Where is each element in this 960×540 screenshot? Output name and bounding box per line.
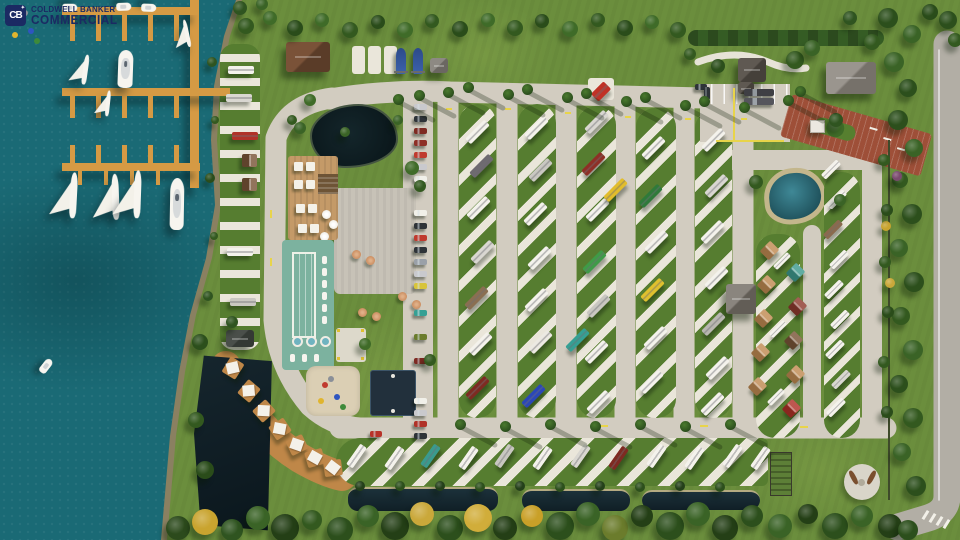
tree xyxy=(424,354,436,366)
palm-tree-icon xyxy=(680,100,691,111)
paver-patio xyxy=(334,188,416,294)
palm-tree-icon xyxy=(562,92,573,103)
tree xyxy=(881,221,891,231)
parked-car xyxy=(414,398,427,404)
tree xyxy=(410,502,434,526)
parked-car xyxy=(414,271,427,277)
dock-finger xyxy=(148,145,153,163)
tree xyxy=(192,509,218,535)
palm-tree-icon xyxy=(739,102,750,113)
tree xyxy=(414,180,426,192)
rv-site-column xyxy=(336,438,768,486)
tree xyxy=(715,482,725,492)
stored-boat xyxy=(413,48,423,74)
tree xyxy=(804,40,820,56)
play-equipment xyxy=(322,382,328,388)
tree xyxy=(686,502,710,526)
palm-tree-icon xyxy=(590,421,601,432)
dock-finger xyxy=(156,171,160,185)
tree xyxy=(903,25,921,43)
parked-car xyxy=(414,421,427,427)
hoop xyxy=(391,374,395,378)
coldwell-banker-cb-icon: CB ✦ xyxy=(5,5,26,26)
yellow-road-mark xyxy=(625,116,631,118)
cabin-ridge xyxy=(249,179,251,190)
cabana xyxy=(294,162,303,171)
cabin-ridge xyxy=(793,302,802,311)
tree xyxy=(233,1,247,15)
yacht-helm xyxy=(175,194,178,201)
tree xyxy=(768,514,792,538)
sport-court xyxy=(370,370,416,416)
tree xyxy=(635,482,645,492)
tree xyxy=(342,22,358,38)
dock-finger xyxy=(148,15,153,41)
parked-car xyxy=(414,152,427,158)
tree xyxy=(741,505,763,527)
yacht xyxy=(170,178,185,230)
umbrella-white xyxy=(329,220,338,229)
park-cabin xyxy=(242,178,257,191)
tree xyxy=(595,481,605,491)
roof-ridge xyxy=(434,65,445,67)
palm-tree-icon xyxy=(581,88,592,99)
yellow-road-mark xyxy=(565,112,571,114)
tree xyxy=(892,307,910,325)
boat-seat xyxy=(121,5,127,9)
dock-finger xyxy=(174,145,179,163)
parked-car xyxy=(414,283,427,289)
lane-dash xyxy=(897,147,905,151)
umbrella-terracotta xyxy=(398,292,407,301)
tree xyxy=(226,316,238,328)
tree xyxy=(357,505,379,527)
tree xyxy=(464,504,492,532)
cabin-ridge xyxy=(791,268,800,277)
tree xyxy=(546,512,574,540)
dock-finger xyxy=(122,145,127,163)
roof-ridge xyxy=(232,338,249,340)
tree xyxy=(359,338,371,350)
pergola xyxy=(318,174,338,194)
yellow-road-mark xyxy=(600,425,608,427)
hot-tub xyxy=(320,336,331,347)
glamping-tent xyxy=(323,459,343,477)
boat-trailer xyxy=(394,71,408,73)
tree xyxy=(893,443,911,461)
tree xyxy=(381,512,409,540)
community-garden xyxy=(770,452,792,496)
tree xyxy=(211,116,219,124)
tree xyxy=(271,514,299,540)
cabin-ridge xyxy=(791,370,800,379)
cabana xyxy=(298,224,307,233)
dock-finger xyxy=(96,145,101,163)
pool-lounger xyxy=(322,268,327,276)
tree xyxy=(903,340,923,360)
brand-wordmark: COLDWELL BANKER COMMERCIAL xyxy=(31,5,118,27)
yellow-road-mark xyxy=(716,140,784,142)
palm-tree-icon xyxy=(680,421,691,432)
tree xyxy=(885,278,895,288)
palm-tree-icon xyxy=(545,419,556,430)
cabin-ridge xyxy=(753,382,762,391)
tree xyxy=(898,520,918,540)
rv-vehicle xyxy=(230,298,256,306)
brand-line1: COLDWELL BANKER xyxy=(31,5,118,14)
parked-car xyxy=(744,89,774,96)
court-marker xyxy=(361,357,364,360)
hedge-row xyxy=(688,30,884,46)
palm-tree-icon xyxy=(443,87,454,98)
palm-tree-icon xyxy=(640,92,651,103)
playground xyxy=(306,366,360,416)
palm-tree-icon xyxy=(621,96,632,107)
roof-ridge xyxy=(732,298,750,300)
cb-star-icon: ✦ xyxy=(21,6,24,11)
tree xyxy=(188,412,204,428)
tree xyxy=(210,232,218,240)
palm-tree-icon xyxy=(463,82,474,93)
court-marker xyxy=(337,329,340,332)
tree xyxy=(712,515,738,540)
parked-car xyxy=(414,210,427,216)
tree xyxy=(890,239,908,257)
roof-ridge xyxy=(295,56,321,58)
pool-lounger xyxy=(290,354,295,362)
lakeside-house xyxy=(286,42,330,72)
tree xyxy=(166,516,190,540)
concrete-pad xyxy=(368,46,381,74)
umbrella-terracotta xyxy=(352,250,361,259)
aerial-site-rendering: CB ✦ COLDWELL BANKER COMMERCIAL PREMIER … xyxy=(0,0,960,540)
palm-tree-icon xyxy=(725,419,736,430)
dock-walkway xyxy=(62,88,230,96)
brand-line2: COMMERCIAL xyxy=(31,14,118,27)
small-boat xyxy=(116,2,131,10)
cabin-ridge xyxy=(787,404,796,413)
play-equipment xyxy=(28,28,34,34)
yacht xyxy=(117,50,133,89)
tree xyxy=(786,51,804,69)
umbrella-terracotta xyxy=(372,312,381,321)
play-equipment xyxy=(340,404,346,410)
stored-boat xyxy=(396,48,406,74)
dock-finger xyxy=(148,96,153,118)
tree xyxy=(203,291,213,301)
parked-car xyxy=(414,334,427,340)
yellow-road-mark xyxy=(741,118,747,120)
parked-car xyxy=(414,410,427,416)
tree xyxy=(287,115,297,125)
dock-finger xyxy=(174,96,179,118)
tree xyxy=(881,406,893,418)
tree xyxy=(905,139,923,157)
tree xyxy=(475,482,485,492)
sailboat xyxy=(94,89,116,117)
tree xyxy=(452,21,468,37)
palm-tree-icon xyxy=(455,419,466,430)
sailboat xyxy=(112,169,150,218)
tree xyxy=(675,481,685,491)
umbrella-terracotta xyxy=(366,256,375,265)
cabana xyxy=(306,162,315,171)
tree xyxy=(562,21,578,37)
tent-canopy xyxy=(257,405,270,417)
cabin-ridge xyxy=(789,336,798,345)
cabana xyxy=(294,180,303,189)
parked-car xyxy=(414,247,427,253)
tree xyxy=(882,306,894,318)
tree xyxy=(878,356,890,368)
rv-vehicle xyxy=(232,132,258,140)
tree xyxy=(371,15,385,29)
dock-finger xyxy=(70,145,75,163)
yellow-road-mark xyxy=(685,118,691,120)
dock-finger xyxy=(122,15,127,41)
tree xyxy=(878,8,898,28)
tree xyxy=(246,506,270,530)
roof-ridge xyxy=(836,77,866,79)
dock-finger xyxy=(70,96,75,118)
yellow-road-mark xyxy=(800,426,808,428)
tree xyxy=(591,13,605,27)
palm-tree-icon xyxy=(783,95,794,106)
palm-tree-icon xyxy=(393,94,404,105)
tree xyxy=(397,22,413,38)
cabana xyxy=(296,204,305,213)
tree xyxy=(851,505,873,527)
parked-car xyxy=(414,259,427,265)
tree xyxy=(515,481,525,491)
tree xyxy=(207,57,217,67)
palm-tree-icon xyxy=(503,89,514,100)
lane-dash xyxy=(869,127,877,131)
tree xyxy=(881,204,893,216)
tree xyxy=(902,204,922,224)
tree xyxy=(749,175,763,189)
tree xyxy=(405,161,419,175)
tent-canopy xyxy=(225,361,239,374)
tree xyxy=(287,20,303,36)
umbrella-terracotta xyxy=(412,300,421,309)
boat-seat xyxy=(146,6,152,10)
dock-finger xyxy=(122,96,127,118)
parked-car xyxy=(414,310,427,316)
maintenance-shed xyxy=(226,330,254,347)
tree xyxy=(340,127,350,137)
tree xyxy=(878,154,890,166)
tree xyxy=(395,481,405,491)
umbrella-terracotta xyxy=(358,308,367,317)
small-boat xyxy=(141,3,156,11)
boat-trailer xyxy=(411,71,425,73)
tree xyxy=(906,476,926,496)
tree xyxy=(263,11,277,25)
tree xyxy=(884,52,904,72)
welcome-center xyxy=(826,62,876,94)
hot-tub xyxy=(306,336,317,347)
cabana xyxy=(306,180,315,189)
court-marker xyxy=(337,357,340,360)
tree xyxy=(888,110,908,130)
tree xyxy=(864,34,880,50)
sailboat-hull xyxy=(105,90,112,116)
tree xyxy=(435,481,445,491)
parked-car xyxy=(414,433,427,439)
tree xyxy=(822,513,848,539)
sailboat-hull xyxy=(133,170,142,218)
tree xyxy=(645,15,659,29)
hot-tub xyxy=(292,336,303,347)
tree xyxy=(205,173,215,183)
firepit-bench xyxy=(866,470,877,486)
pool-lounger xyxy=(314,354,319,362)
tree xyxy=(393,115,403,125)
tent-canopy xyxy=(325,460,341,476)
tree xyxy=(834,194,846,206)
tree xyxy=(602,515,628,540)
roof-ridge xyxy=(744,69,761,71)
sailboat-hull xyxy=(81,54,90,84)
palm-tree-icon xyxy=(795,86,806,97)
play-equipment xyxy=(318,398,324,404)
umbrella-white xyxy=(322,210,331,219)
yellow-road-mark xyxy=(700,425,708,427)
palm-tree-icon xyxy=(635,419,646,430)
tree xyxy=(617,20,633,36)
rv-vehicle xyxy=(228,66,254,74)
parked-car xyxy=(414,235,427,241)
tree xyxy=(892,171,902,181)
sailboat xyxy=(68,53,94,86)
cabin-ridge xyxy=(762,280,771,289)
rv-vehicle xyxy=(227,248,253,256)
tree xyxy=(521,505,543,527)
tree xyxy=(903,408,923,428)
tree xyxy=(238,18,254,34)
tent-canopy xyxy=(242,385,255,397)
play-equipment xyxy=(12,32,18,38)
tree xyxy=(631,505,653,527)
yellow-road-mark xyxy=(270,258,272,266)
court-marker xyxy=(361,329,364,332)
tree xyxy=(493,516,517,540)
cabana xyxy=(308,204,317,213)
tree xyxy=(576,502,600,526)
pool-lounger xyxy=(322,280,327,288)
pool-lounger xyxy=(322,256,327,264)
storage-shed xyxy=(430,58,448,73)
tree xyxy=(843,11,857,25)
cabin-ridge xyxy=(249,155,251,166)
rv-vehicle xyxy=(226,94,252,102)
yellow-road-mark xyxy=(270,210,272,218)
tree xyxy=(425,14,439,28)
tree xyxy=(302,510,322,530)
cabin-ridge xyxy=(765,246,774,255)
hoop xyxy=(391,409,395,413)
swimming-pool xyxy=(292,252,316,338)
fence-line xyxy=(888,140,890,500)
park-cabin xyxy=(242,154,257,167)
sailboat-hull xyxy=(69,172,78,218)
sailboat xyxy=(49,171,86,219)
tree xyxy=(192,334,208,350)
palm-tree-icon xyxy=(414,90,425,101)
tree xyxy=(196,461,214,479)
tent-canopy xyxy=(273,422,287,435)
tree xyxy=(355,481,365,491)
tree xyxy=(684,48,696,60)
cabin-ridge xyxy=(756,348,765,357)
tree xyxy=(656,512,684,540)
tree xyxy=(507,20,523,36)
boat-seat xyxy=(42,362,49,369)
tree xyxy=(904,272,924,292)
parked-car xyxy=(370,431,382,437)
pool-lounger xyxy=(322,316,327,324)
tree xyxy=(939,11,957,29)
tree xyxy=(315,13,329,27)
yellow-road-mark xyxy=(505,108,511,110)
palm-tree-icon xyxy=(500,421,511,432)
tree xyxy=(327,517,353,540)
tree xyxy=(555,482,565,492)
mid-house xyxy=(726,284,756,314)
tree xyxy=(798,504,818,524)
tree xyxy=(711,59,725,73)
tree xyxy=(670,22,686,38)
tree xyxy=(294,122,306,134)
tent-canopy xyxy=(307,450,323,465)
tree xyxy=(437,515,463,540)
yellow-road-mark xyxy=(733,88,735,140)
tree xyxy=(922,4,938,20)
tree xyxy=(304,94,316,106)
tree xyxy=(879,256,891,268)
pool-lounger xyxy=(322,304,327,312)
firepit-circle xyxy=(844,464,880,500)
tree xyxy=(948,33,960,47)
parked-car xyxy=(414,223,427,229)
cb-monogram: CB xyxy=(9,10,21,21)
tree xyxy=(890,375,908,393)
tree xyxy=(481,13,495,27)
tree xyxy=(899,79,917,97)
cabin-ridge xyxy=(759,314,768,323)
play-equipment xyxy=(334,394,340,400)
cabana xyxy=(310,224,319,233)
palm-tree-icon xyxy=(522,84,533,95)
play-equipment xyxy=(328,376,334,382)
concrete-pad xyxy=(352,46,365,74)
pool-lounger xyxy=(322,292,327,300)
pool-lounger xyxy=(302,354,307,362)
parked-car xyxy=(414,128,427,134)
gate-building xyxy=(738,58,766,82)
parked-car xyxy=(414,140,427,146)
tree xyxy=(829,113,843,127)
tree xyxy=(221,519,243,540)
tent-canopy xyxy=(289,437,304,451)
play-equipment xyxy=(34,38,40,44)
palm-tree-icon xyxy=(699,96,710,107)
tree xyxy=(535,14,549,28)
firepit-center xyxy=(858,479,865,486)
